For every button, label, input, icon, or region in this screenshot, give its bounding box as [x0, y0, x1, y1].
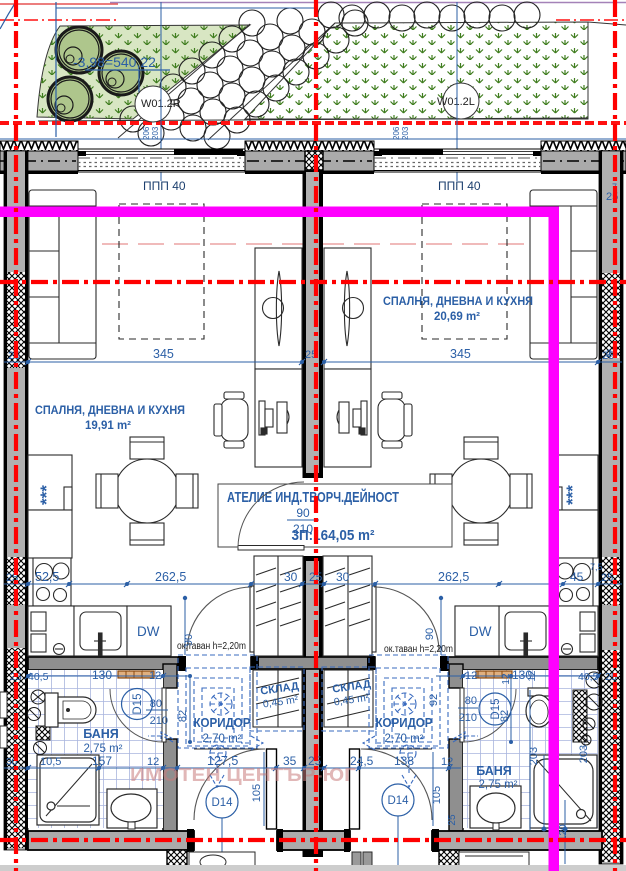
- svg-text:45: 45: [570, 570, 584, 584]
- svg-text:80: 80: [465, 695, 477, 707]
- svg-text:СПАЛНЯ, ДНЕВНА И КУХНЯ: СПАЛНЯ, ДНЕВНА И КУХНЯ: [35, 405, 185, 417]
- svg-text:30: 30: [336, 570, 350, 584]
- svg-text:92: 92: [428, 694, 440, 706]
- svg-text:90: 90: [296, 506, 310, 520]
- svg-text:2,70 m²: 2,70 m²: [385, 733, 424, 745]
- svg-text:2,70 m²: 2,70 m²: [203, 733, 242, 745]
- svg-text:АТЕЛИЕ ИНД.ТВОРЧ.ДЕЙНОСТ: АТЕЛИЕ ИНД.ТВОРЧ.ДЕЙНОСТ: [227, 488, 399, 506]
- svg-text:***: ***: [563, 485, 582, 505]
- svg-text:СПАЛНЯ, ДНЕВНА И КУХНЯ: СПАЛНЯ, ДНЕВНА И КУХНЯ: [383, 296, 533, 308]
- svg-text:12: 12: [527, 670, 538, 682]
- svg-text:130: 130: [92, 668, 112, 682]
- svg-text:ППП 40: ППП 40: [438, 179, 481, 193]
- svg-text:-3,98=540,22: -3,98=540,22: [73, 54, 156, 70]
- svg-text:138: 138: [394, 754, 414, 768]
- svg-text:ППП 40: ППП 40: [143, 179, 186, 193]
- svg-text:DW: DW: [469, 624, 492, 639]
- svg-text:БАНЯ: БАНЯ: [83, 727, 119, 741]
- svg-text:203: 203: [401, 126, 410, 140]
- svg-text:2,75 m²: 2,75 m²: [479, 779, 518, 791]
- svg-text:12: 12: [441, 756, 453, 768]
- svg-text:82: 82: [177, 710, 189, 722]
- svg-text:262,5: 262,5: [155, 570, 186, 584]
- svg-text:19,91 m²: 19,91 m²: [85, 420, 131, 432]
- svg-text:25: 25: [601, 572, 613, 584]
- svg-text:157: 157: [92, 754, 112, 768]
- svg-text:КОРИДОР: КОРИДОР: [194, 716, 251, 730]
- svg-text:***: ***: [37, 485, 56, 505]
- svg-text:30: 30: [284, 570, 298, 584]
- svg-text:12: 12: [465, 670, 477, 682]
- svg-text:D15: D15: [132, 693, 144, 714]
- svg-text:БАНЯ: БАНЯ: [476, 764, 512, 778]
- svg-text:203: 203: [151, 126, 160, 140]
- svg-text:206: 206: [142, 126, 151, 140]
- svg-text:345: 345: [153, 347, 174, 361]
- svg-text:12: 12: [149, 670, 161, 682]
- svg-text:210: 210: [459, 712, 477, 724]
- svg-text:262,5: 262,5: [438, 570, 469, 584]
- svg-text:345: 345: [450, 347, 471, 361]
- svg-text:ИМОТЕН ЦЕНТЪР-ЮГ: ИМОТЕН ЦЕНТЪР-ЮГ: [130, 764, 357, 785]
- svg-text:DW: DW: [137, 624, 160, 639]
- svg-text:52,5: 52,5: [35, 570, 59, 584]
- svg-text:3П:164,05 m²: 3П:164,05 m²: [292, 528, 375, 544]
- svg-text:12: 12: [501, 673, 512, 685]
- svg-text:25: 25: [447, 814, 458, 826]
- svg-text:2,75 m²: 2,75 m²: [84, 743, 123, 755]
- svg-text:40,5: 40,5: [578, 671, 599, 683]
- svg-text:40,5: 40,5: [28, 671, 49, 683]
- svg-text:D14: D14: [211, 797, 233, 809]
- svg-text:ок.таван h=2,20m: ок.таван h=2,20m: [177, 641, 246, 652]
- svg-text:20,69 m²: 20,69 m²: [434, 311, 480, 323]
- svg-text:203: 203: [578, 745, 590, 763]
- svg-text:КОРИДОР: КОРИДОР: [376, 716, 433, 730]
- svg-text:W01.2L: W01.2L: [437, 96, 475, 108]
- svg-text:D15: D15: [490, 698, 502, 719]
- svg-text:105: 105: [251, 784, 263, 802]
- svg-text:10,5: 10,5: [40, 756, 61, 768]
- svg-text:210: 210: [150, 715, 168, 727]
- svg-text:7,5: 7,5: [590, 562, 603, 572]
- svg-text:90: 90: [424, 628, 436, 640]
- svg-text:D14: D14: [387, 795, 409, 807]
- svg-text:206: 206: [392, 126, 401, 140]
- svg-text:ок.таван h=2,20m: ок.таван h=2,20m: [384, 644, 453, 655]
